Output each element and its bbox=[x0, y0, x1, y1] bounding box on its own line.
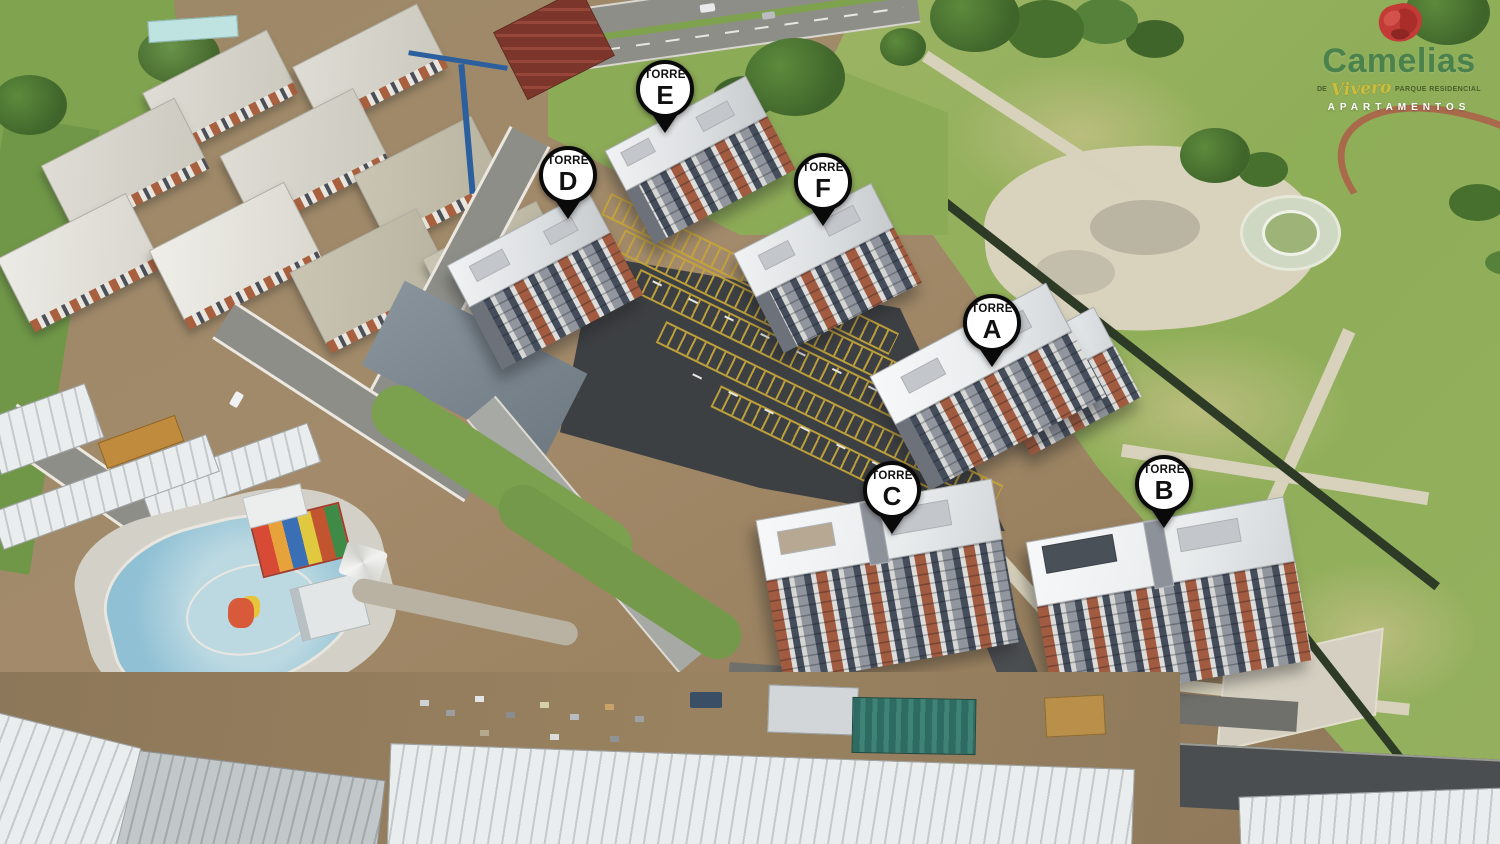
marker-torre-f: TORRE F bbox=[794, 153, 852, 227]
fountain-ring-inner bbox=[1262, 210, 1320, 256]
small-shed bbox=[1044, 694, 1106, 737]
marker-torre-c: TORRE C bbox=[863, 461, 921, 535]
marker-head: TORRE A bbox=[963, 294, 1021, 352]
brand-tagline-row: DE Vivero PARQUE RESIDENCIAL bbox=[1304, 79, 1494, 99]
teal-shed bbox=[852, 697, 977, 755]
brand-logo: Camelias DE Vivero PARQUE RESIDENCIAL AP… bbox=[1304, 2, 1494, 113]
marker-torre-d: TORRE D bbox=[539, 146, 597, 220]
brand-name: Camelias bbox=[1304, 44, 1494, 78]
roof-equipment bbox=[620, 138, 656, 167]
car bbox=[229, 391, 244, 408]
brand-subtitle: APARTAMENTOS bbox=[1304, 102, 1494, 113]
marker-letter: E bbox=[656, 82, 673, 108]
roof-equipment bbox=[758, 240, 796, 271]
aerial-photo: TORRE E TORRE D TORRE F TORRE A TORRE C bbox=[0, 0, 1500, 844]
marker-torre-a: TORRE A bbox=[963, 294, 1021, 368]
marker-head: TORRE E bbox=[636, 60, 694, 118]
marker-torre-b: TORRE B bbox=[1135, 455, 1193, 529]
roof-tarp bbox=[1042, 534, 1118, 574]
marker-letter: A bbox=[983, 316, 1002, 342]
skate-bowl bbox=[1090, 200, 1200, 255]
roof-equipment bbox=[777, 522, 836, 555]
marker-letter: C bbox=[883, 483, 902, 509]
pool-slide bbox=[228, 598, 254, 628]
materials-canopy bbox=[767, 684, 859, 735]
marker-head: TORRE B bbox=[1135, 455, 1193, 513]
roof-equipment bbox=[469, 248, 511, 282]
marker-torre-e: TORRE E bbox=[636, 60, 694, 134]
landscape-strip bbox=[490, 476, 751, 669]
roof-equipment bbox=[900, 357, 946, 393]
construction-building bbox=[149, 182, 320, 321]
marker-letter: B bbox=[1155, 477, 1174, 503]
blue-truck bbox=[690, 692, 722, 708]
brand-de: DE bbox=[1317, 86, 1327, 93]
construction-building bbox=[292, 3, 444, 120]
tree-cluster bbox=[1180, 128, 1250, 183]
marker-letter: F bbox=[815, 175, 831, 201]
marker-head: TORRE F bbox=[794, 153, 852, 211]
warehouse-roof bbox=[1239, 787, 1500, 844]
brand-script: Vivero bbox=[1330, 77, 1391, 100]
brand-tagline: PARQUE RESIDENCIAL bbox=[1395, 86, 1481, 93]
roof-equipment bbox=[543, 216, 579, 245]
avenue-tree bbox=[880, 28, 926, 66]
construction-facade bbox=[30, 257, 163, 333]
marker-head: TORRE C bbox=[863, 461, 921, 519]
construction-debris bbox=[420, 700, 429, 706]
marker-letter: D bbox=[559, 168, 578, 194]
roof-equipment bbox=[695, 100, 735, 132]
roof-stair-core bbox=[1143, 519, 1175, 589]
marker-head: TORRE D bbox=[539, 146, 597, 204]
